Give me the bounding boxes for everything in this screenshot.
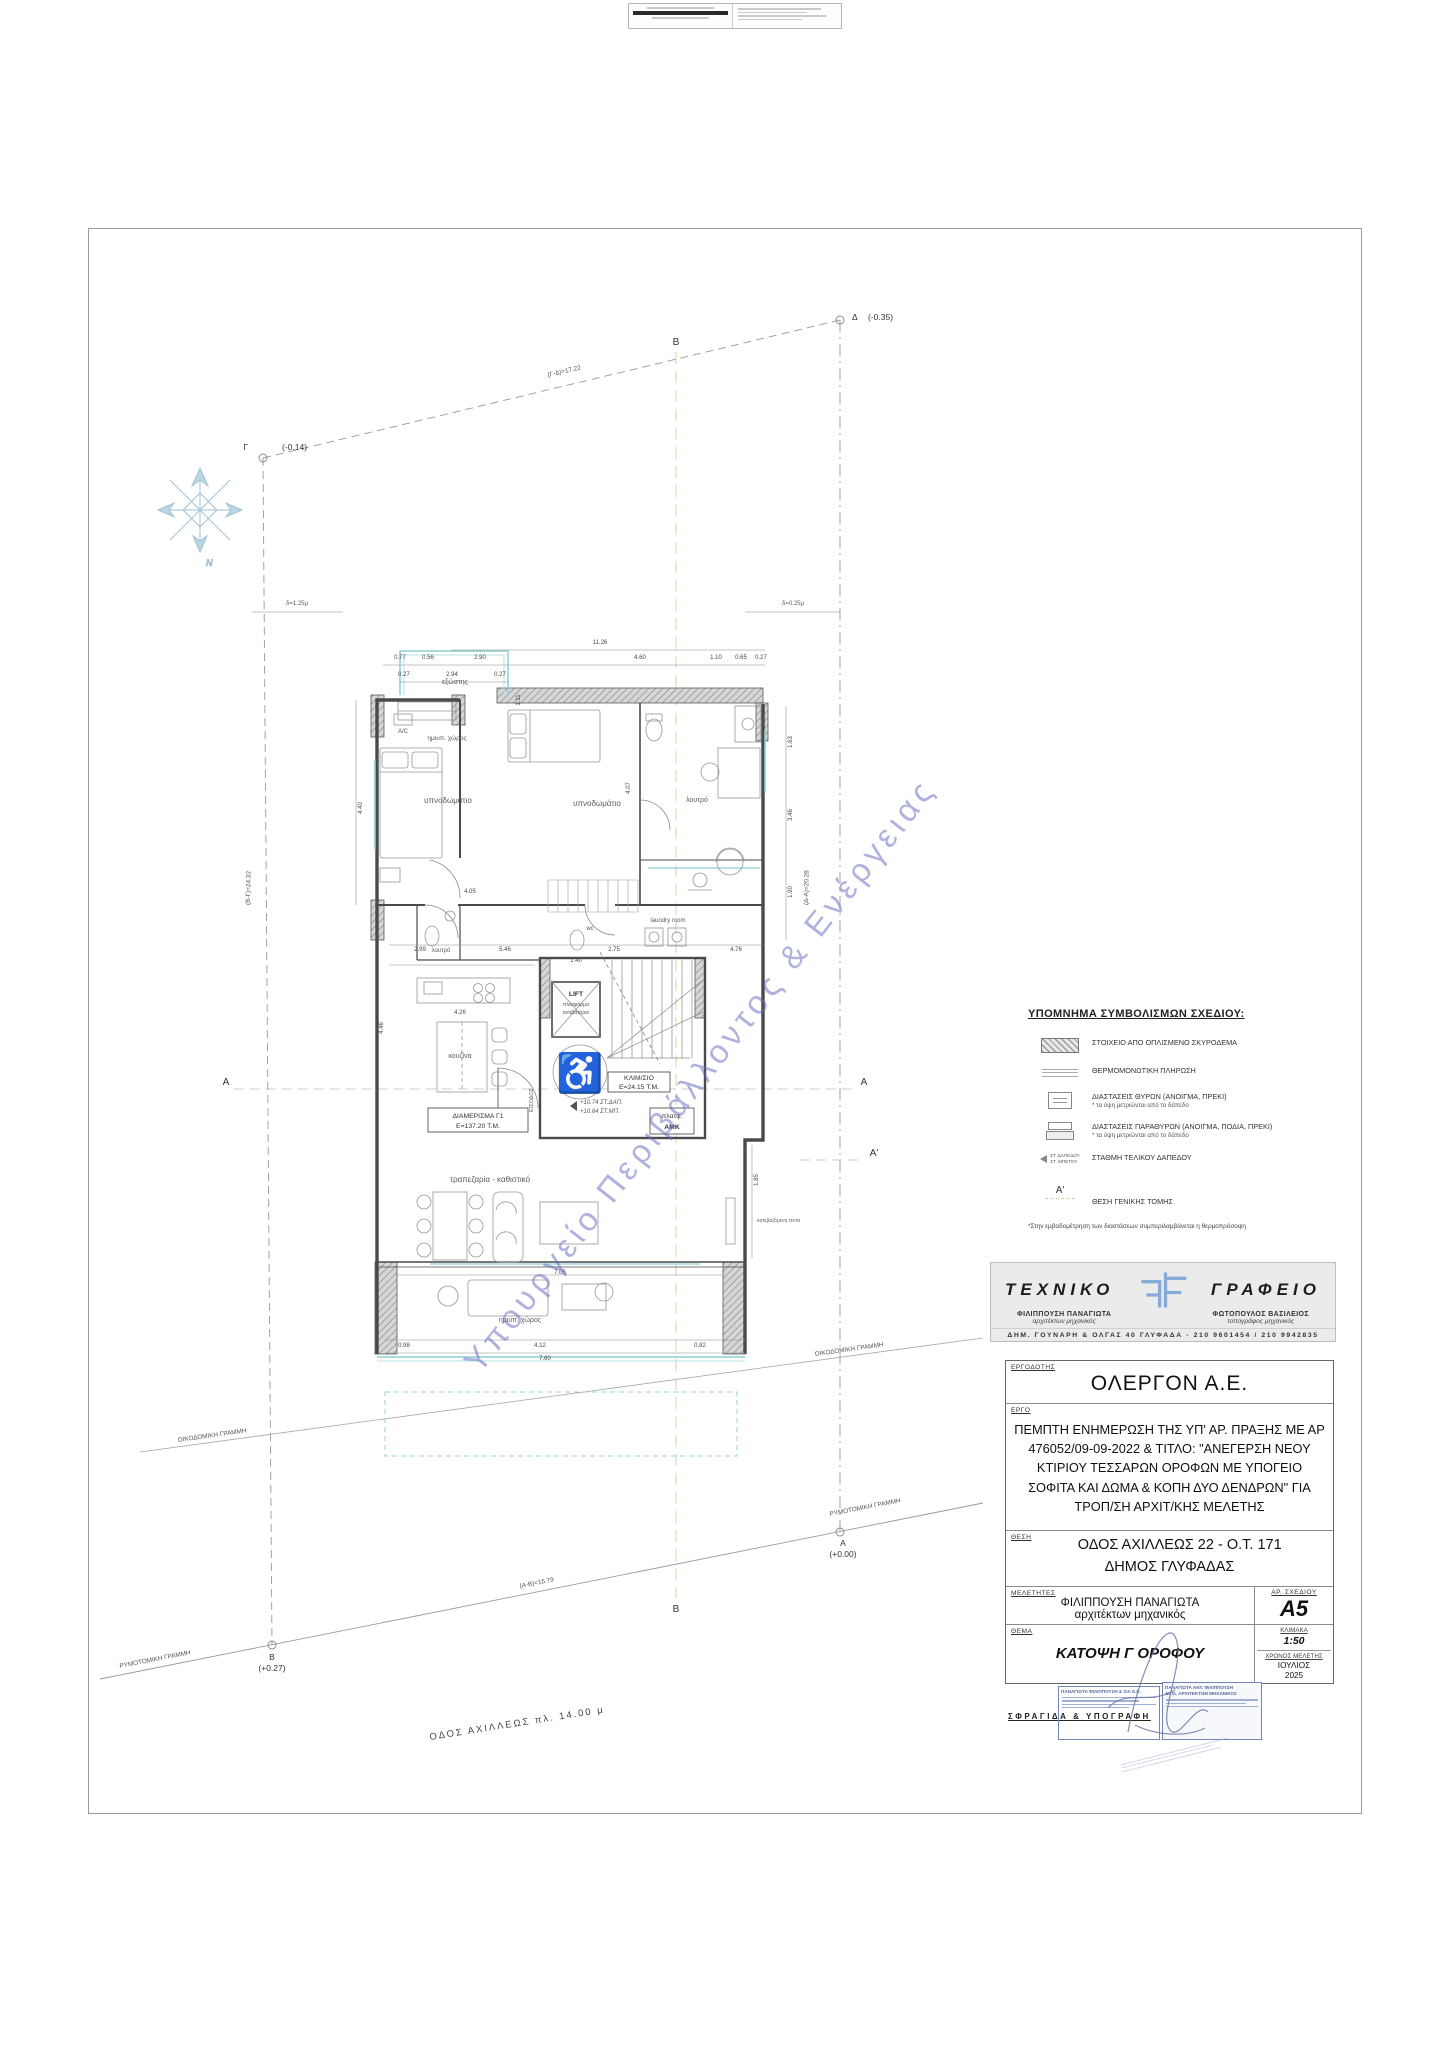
drawing-no-label: ΑΡ. ΣΧΕΔΙΟΥ: [1257, 1589, 1331, 1596]
designers-row: ΜΕΛΕΤΗΤΕΣ ΦΙΛΙΠΠΟΥΣΗ ΠΑΝΑΓΙΩΤΑ αρχιτέκτω…: [1006, 1587, 1333, 1625]
dimension-label: 1.40: [570, 958, 582, 964]
dimension-label: 4.46: [379, 1022, 385, 1034]
ac-label: A/C: [398, 729, 409, 735]
legend-item-doors: ΔΙΑΣΤΑΣΕΙΣ ΘΥΡΩΝ (ΑΝΟΙΓΜΑ, ΠΡΕΚΙ) * τα ύ…: [1028, 1092, 1340, 1109]
apartment-area: Ε=137.20 Τ.Μ.: [456, 1123, 500, 1130]
tent-label: κατεβαζόμενη τέντα: [757, 1217, 800, 1224]
corner-delta: Δ: [852, 312, 858, 322]
dimension-label: 7.05: [554, 1270, 566, 1276]
dimension-label: 4.76: [730, 947, 742, 953]
designer-title: αρχιτέκτων μηχανικός: [1011, 1609, 1249, 1621]
apartment-id: ΔΙΑΜΕΡΙΣΜΑ Γ1: [452, 1113, 503, 1120]
office-name-right: ΓΡΑΦΕΙΟ: [1211, 1280, 1321, 1300]
edge-bottom-dim: (Α-Β)=16.79: [519, 1576, 555, 1590]
north-label: N: [206, 558, 213, 568]
dimension-label: 2.99: [414, 947, 426, 953]
office-logo-icon: [1135, 1270, 1191, 1310]
location-line1: ΟΔΟΣ ΑΧΙΛΛΕΩΣ 22 - Ο.Τ. 171: [1011, 1536, 1328, 1556]
office-address: ΔΗΜ. ΓΟΥΝΑΡΗ & ΟΛΓΑΣ 40 ΓΛΥΦΑΔΑ - 210 96…: [991, 1328, 1335, 1339]
window-dimension-icon: [1047, 1122, 1073, 1140]
digital-signature-block: [628, 3, 842, 29]
office-name-left: ΤΕΧΝΙΚΟ: [1005, 1280, 1114, 1300]
room-bath-mid: λουτρό: [432, 947, 451, 954]
street-name: ΟΔΟΣ ΑΧΙΛΛΕΩΣ πλ. 14.00 μ: [429, 1704, 606, 1743]
platform-label-2: ΑΜΚ: [664, 1124, 680, 1131]
dimension-label: 7.60: [539, 1356, 551, 1362]
section-b-bottom: Β: [673, 1604, 680, 1615]
room-wc: wc: [585, 926, 593, 932]
section-lines: Β Β Α Α Α': [223, 337, 879, 1615]
office-person-1: ΦΙΛΙΠΠΟΥΣΗ ΠΑΝΑΓΙΩΤΑ αρχιτέκτων μηχανικό…: [1017, 1311, 1111, 1325]
room-semiopen-top: ημιυπ. χώρος: [427, 734, 466, 742]
concrete-hatch-icon: [1041, 1038, 1079, 1053]
corner-gamma-level: (-0.14): [282, 442, 307, 452]
corner-gamma: Γ: [243, 442, 248, 452]
dimension-label: 4.60: [634, 655, 646, 661]
building-line-label-left: ΟΙΚΟΔΟΜΙΚΗ ΓΡΑΜΜΗ: [177, 1427, 247, 1444]
dimension-label: 0.27: [398, 672, 410, 678]
dimension-label: 5.46: [499, 947, 511, 953]
site-boundary: Γ (-0.14) Δ (-0.35) Β (+0.27) Α (+0.00) …: [100, 312, 983, 1743]
legend-item-level: ΣΤ. ΔΑΠΕΔΟΥ ΣΤ. ΜΠΕΤΟΥ ΣΤΑΘΜΗ ΤΕΛΙΚΟΥ ΔΑ…: [1028, 1153, 1340, 1165]
title-block: ΕΡΓΟΔΟΤΗΣ ΟΛΕΡΓΟΝ Α.Ε. ΕΡΓΟ ΠΕΜΠΤΗ ΕΝΗΜΕ…: [1005, 1360, 1334, 1684]
concrete-beam: [497, 688, 763, 703]
dimension-label: 0.77: [394, 655, 406, 661]
lift-label-3: αναβατόριο: [563, 1009, 590, 1016]
entrance-label: ΕΙΣΟΔΟΣ: [529, 1087, 535, 1112]
room-semiopen-bottom: ημιυπ. χώρος: [499, 1316, 542, 1324]
company-stamp: ΠΑΝΑΓΙΩΤΑ ΦΙΛΙΠΠΟΥΣΗ & ΣΙΑ Ε.Ε.: [1058, 1686, 1160, 1740]
owner-label: ΕΡΓΟΔΟΤΗΣ: [1011, 1364, 1328, 1371]
room-living: τραπεζαρία - καθιστικό: [450, 1175, 531, 1184]
company-stamp-name: ΠΑΝΑΓΙΩΤΑ ΦΙΛΙΠΠΟΥΣΗ & ΣΙΑ Ε.Ε.: [1061, 1689, 1157, 1695]
wheelchair-symbol: ♿: [553, 1045, 607, 1099]
legend-item-section: Α' ΘΕΣΗ ΓΕΝΙΚΗΣ ΤΟΜΗΣ: [1028, 1185, 1340, 1207]
stairwell-id: ΚΛΙΜ/ΣΙΟ: [624, 1075, 654, 1082]
legend-item-note: * τα ύψη μετριώνται από το δάπεδο: [1092, 1102, 1227, 1109]
owner-row: ΕΡΓΟΔΟΤΗΣ ΟΛΕΡΓΟΝ Α.Ε.: [1006, 1361, 1333, 1404]
office-person-2: ΦΩΤΟΠΟΥΛΟΣ ΒΑΣΙΛΕΙΟΣ τοπογράφος μηχανικό…: [1212, 1311, 1309, 1325]
drawing-number: A5: [1257, 1596, 1331, 1622]
room-balcony-top: εξώστης: [442, 678, 469, 686]
stairwell-area: Ε=24.15 Τ.Μ.: [619, 1084, 659, 1091]
section-a-prime: Α': [870, 1148, 879, 1159]
edge-right-dim: (Δ-Α)=20.28: [803, 870, 811, 905]
architect-stamp-title: ΔΙΠΛ. ΑΡΧΙΤΕΚΤΩΝ ΜΗΧΑΝΙΚΟΣ: [1165, 1691, 1259, 1697]
dimension-label: 3.46: [788, 809, 794, 821]
room-bedroom-left: υπνοδωμάτιο: [424, 796, 472, 805]
north-arrow-icon: N: [158, 468, 242, 568]
legend-item-note: * τα ύψη μετριώνται από το δάπεδο: [1092, 1132, 1272, 1139]
designers-label: ΜΕΛΕΤΗΤΕΣ: [1011, 1590, 1249, 1597]
lift-label-2: πλατφόρμα: [563, 1001, 589, 1008]
level-floor: +10.74 ΣΤ.ΔΑΠ.: [580, 1100, 623, 1106]
lift: LIFT πλατφόρμα αναβατόριο: [552, 982, 600, 1037]
date-month: ΙΟΥΛΙΟΣ: [1257, 1661, 1331, 1671]
dimension-label: 1.90: [788, 886, 794, 898]
dimension-label: 11.26: [593, 640, 608, 646]
subject-title: ΚΑΤΟΨΗ Γ ΟΡΟΦΟΥ: [1011, 1645, 1249, 1662]
project-description: ΠΕΜΠΤΗ ΕΝΗΜΕΡΩΣΗ ΤΗΣ ΥΠ' ΑΡ. ΠΡΑΞΗΣ ΜΕ Α…: [1013, 1420, 1326, 1516]
architect-stamp: ΠΑΝΑΓΙΩΤΑ ΑΝΤ. ΦΙΛΙΠΠΟΥΣΗ ΔΙΠΛ. ΑΡΧΙΤΕΚΤ…: [1162, 1682, 1262, 1740]
setback-right: δ=0.25μ: [782, 601, 805, 607]
dimension-label: 0.82: [694, 1343, 706, 1349]
legend-item-thermal: ΘΕΡΜΟΜΟΝΩΤΙΚΗ ΠΛΗΡΩΣΗ: [1028, 1066, 1340, 1079]
dimension-label: 0.27: [755, 655, 767, 661]
dimension-label: 4.12: [534, 1343, 546, 1349]
dimension-label: 4.05: [464, 889, 476, 895]
section-symbol-icon: Α': [1045, 1185, 1075, 1199]
corner-delta-level: (-0.35): [868, 312, 893, 322]
section-a-left: Α: [223, 1077, 230, 1088]
wheelchair-icon: ♿: [556, 1051, 603, 1095]
designer-name: ΦΙΛΙΠΠΟΥΣΗ ΠΑΝΑΓΙΩΤΑ: [1011, 1597, 1249, 1609]
thermal-lines-icon: [1042, 1066, 1078, 1079]
room-kitchen: κουζίνα: [448, 1052, 471, 1060]
legend-item-label: ΘΕΣΗ ΓΕΝΙΚΗΣ ΤΟΜΗΣ: [1092, 1197, 1173, 1207]
legend-item-label: ΔΙΑΣΤΑΣΕΙΣ ΠΑΡΑΘΥΡΩΝ (ΑΝΟΙΓΜΑ, ΠΟΔΙΑ, ΠΡ…: [1092, 1122, 1272, 1132]
corner-alpha-level: (+0.00): [829, 1549, 856, 1559]
room-bedroom-right: υπνοδωμάτιο: [573, 799, 621, 808]
dimension-label: 1.63: [788, 736, 794, 748]
subject-row: ΘΕΜΑ ΚΑΤΟΨΗ Γ ΟΡΟΦΟΥ ΚΛΙΜΑΚΑ 1:50 ΧΡΟΝΟΣ…: [1006, 1625, 1333, 1683]
dimension-label: 2.90: [474, 655, 486, 661]
legend-item-label: ΔΙΑΣΤΑΣΕΙΣ ΘΥΡΩΝ (ΑΝΟΙΓΜΑ, ΠΡΕΚΙ): [1092, 1092, 1227, 1102]
building-line-label-right: ΟΙΚΟΔΟΜΙΚΗ ΓΡΑΜΜΗ: [814, 1341, 884, 1358]
section-a-right: Α: [861, 1077, 868, 1088]
section-b-top: Β: [673, 337, 680, 348]
dimension-label: 0.27: [494, 672, 506, 678]
dimension-label: 1.11: [516, 694, 522, 706]
location-row: ΘΕΣΗ ΟΔΟΣ ΑΧΙΛΛΕΩΣ 22 - Ο.Τ. 171 ΔΗΜΟΣ Γ…: [1006, 1531, 1333, 1587]
level-concrete: +10.64 ΣΤ.ΜΠ.: [580, 1109, 620, 1115]
legend-footnote: *Στην εμβαδομέτρηση των διαστάσεων συμπε…: [1028, 1223, 1340, 1230]
project-row: ΕΡΓΟ ΠΕΜΠΤΗ ΕΝΗΜΕΡΩΣΗ ΤΗΣ ΥΠ' ΑΡ. ΠΡΑΞΗΣ…: [1006, 1404, 1333, 1531]
edge-top-dim: (Γ-Δ)=17.22: [547, 364, 582, 379]
office-box: ΤΕΧΝΙΚΟ ΓΡΑΦΕΙΟ ΦΙΛΙΠΠΟΥΣΗ ΠΑΝΑΓΙΩΤΑ αρχ…: [990, 1262, 1336, 1342]
legend-item-windows: ΔΙΑΣΤΑΣΕΙΣ ΠΑΡΑΘΥΡΩΝ (ΑΝΟΙΓΜΑ, ΠΟΔΙΑ, ΠΡ…: [1028, 1122, 1340, 1140]
platform-label-1: πλατφ.: [662, 1113, 683, 1120]
door-dimension-icon: [1048, 1092, 1072, 1109]
corner-beta: Β: [269, 1652, 275, 1662]
scale-label: ΚΛΙΜΑΚΑ: [1257, 1627, 1331, 1635]
dimension-label: 2.75: [608, 947, 620, 953]
room-laundry: laundry room: [650, 918, 685, 924]
setback-left: δ=1.25μ: [286, 601, 309, 607]
project-label: ΕΡΓΟ: [1011, 1407, 1328, 1414]
edge-left-dim: (Β-Γ)=24.32: [245, 871, 253, 905]
dimension-label: 0.56: [422, 655, 434, 661]
legend-item-label: ΣΤΟΙΧΕΙΟ ΑΠΟ ΟΠΛΙΣΜΕΝΟ ΣΚΥΡΟΔΕΜΑ: [1092, 1038, 1237, 1048]
legend-title: ΥΠΟΜΝΗΜΑ ΣΥΜΒΟΛΙΣΜΩΝ ΣΧΕΔΙΟΥ:: [1028, 1008, 1340, 1020]
legend-item-label: ΣΤΑΘΜΗ ΤΕΛΙΚΟΥ ΔΑΠΕΔΟΥ: [1092, 1153, 1192, 1163]
digital-signature-left: [629, 4, 733, 28]
dimension-label: 0.65: [735, 655, 747, 661]
legend-item-label: ΘΕΡΜΟΜΟΝΩΤΙΚΗ ΠΛΗΡΩΣΗ: [1092, 1066, 1196, 1076]
date-label: ΧΡΟΝΟΣ ΜΕΛΕΤΗΣ: [1257, 1650, 1331, 1661]
dimension-label: 1.85: [754, 1174, 760, 1186]
dimension-label: 4.07: [626, 782, 632, 794]
dimension-label: 1.10: [710, 655, 722, 661]
location-label: ΘΕΣΗ: [1011, 1534, 1031, 1541]
subject-label: ΘΕΜΑ: [1011, 1628, 1249, 1635]
dimension-label: 0.98: [398, 1343, 410, 1349]
dimension-label: 2.94: [446, 672, 458, 678]
digital-signature-right: [733, 4, 841, 28]
date-year: 2025: [1257, 1671, 1331, 1681]
legend-item-concrete: ΣΤΟΙΧΕΙΟ ΑΠΟ ΟΠΛΙΣΜΕΝΟ ΣΚΥΡΟΔΕΜΑ: [1028, 1038, 1340, 1053]
dimension-label: 4.26: [454, 1010, 466, 1016]
drawing-sheet: Γ (-0.14) Δ (-0.35) Β (+0.27) Α (+0.00) …: [0, 0, 1449, 2048]
legend: ΥΠΟΜΝΗΜΑ ΣΥΜΒΟΛΙΣΜΩΝ ΣΧΕΔΙΟΥ: ΣΤΟΙΧΕΙΟ Α…: [1028, 1008, 1340, 1230]
owner-name: ΟΛΕΡΓΟΝ Α.Ε.: [1011, 1372, 1328, 1396]
scale-value: 1:50: [1257, 1635, 1331, 1648]
level-symbol-icon: ΣΤ. ΔΑΠΕΔΟΥ ΣΤ. ΜΠΕΤΟΥ: [1040, 1153, 1079, 1165]
corner-beta-level: (+0.27): [258, 1663, 285, 1673]
location-line2: ΔΗΜΟΣ ΓΛΥΦΑΔΑΣ: [1011, 1558, 1328, 1578]
corner-alpha: Α: [840, 1538, 846, 1548]
lift-label: LIFT: [569, 991, 584, 998]
room-bath-right: λουτρό: [686, 796, 708, 804]
dimension-label: 4.40: [358, 802, 364, 814]
street-line-label-left: ΡΥΜΟΤΟΜΙΚΗ ΓΡΑΜΜΗ: [119, 1649, 192, 1670]
